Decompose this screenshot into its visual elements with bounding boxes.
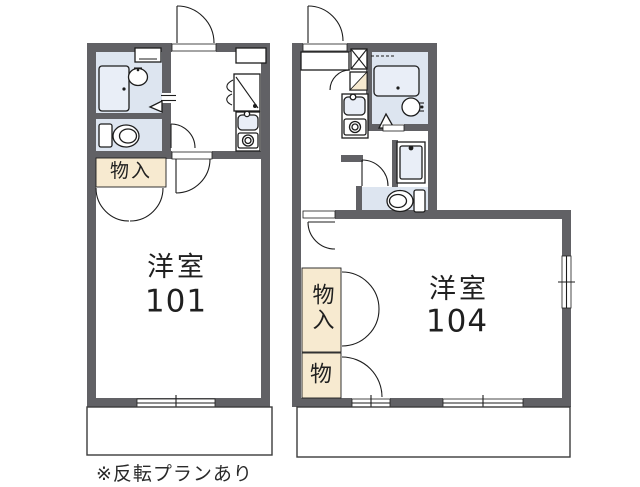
accordion-curtain-icon (227, 80, 233, 105)
bathtub-icon (374, 66, 419, 96)
wall (562, 308, 571, 407)
room-104-type-label: 洋室 (429, 276, 489, 304)
wall (404, 124, 437, 131)
washbasin-tap-dot (421, 106, 424, 109)
room-101-type-label: 洋室 (147, 254, 207, 282)
washing-machine-tap-dot (409, 146, 414, 151)
entry-door-swing-arc-101 (177, 6, 214, 43)
kitchen-faucet-dot (244, 111, 249, 116)
washbasin-icon (402, 98, 420, 116)
toilet-door-swing-arc-104 (362, 160, 388, 186)
wall (87, 43, 96, 407)
balcony-104 (297, 407, 570, 457)
stove-burner-inner (352, 124, 358, 130)
unit-101 (87, 6, 272, 455)
shoe-cabinet-104 (301, 52, 349, 70)
wall (390, 398, 443, 407)
balcony-101 (87, 407, 272, 455)
wall (562, 219, 571, 256)
toilet-bowl-inner (390, 195, 407, 208)
bathroom-threshold-104 (383, 125, 404, 131)
hall-door-swing-arc-104 (330, 70, 350, 90)
wall (212, 151, 261, 159)
wall (96, 151, 171, 158)
room-door-opening-101 (172, 152, 212, 159)
wall (261, 43, 270, 407)
washing-machine-tap-dot (253, 104, 257, 108)
entry-door-opening-104 (303, 44, 347, 51)
wall (523, 398, 571, 407)
wall (162, 52, 171, 93)
room-door-swing-arc-101 (176, 159, 210, 193)
footnote-reversed-plan: ※反転プランあり (96, 459, 253, 486)
closet-door-arc (96, 188, 129, 221)
bathroom-window-101 (135, 48, 161, 62)
floor-plan-canvas: 洋室 101 洋室 104 物入 物入 物 ※反転プランあり (0, 0, 640, 487)
kitchen-faucet-dot (350, 94, 356, 100)
wall (341, 155, 363, 162)
room-104-number-label: 104 (426, 306, 488, 339)
closet-door-arc (342, 272, 379, 309)
washing-machine-drum (400, 146, 422, 179)
wall (356, 186, 362, 215)
closet-door-arc (342, 309, 379, 346)
closet-door-arc (342, 357, 382, 397)
toilet-door-swing-arc-101 (171, 124, 195, 148)
wall (335, 210, 571, 219)
room-door-opening-104 (303, 211, 335, 218)
storage-104-sub-label: 物 (310, 363, 332, 386)
bathtub-drain-dot (122, 87, 125, 90)
stove-burner-inner (245, 138, 251, 144)
room-door-swing-arc-104 (308, 222, 335, 249)
washbasin-tap-dot (137, 69, 140, 72)
wall (292, 43, 301, 407)
kitchen-window-101 (236, 48, 266, 63)
toilet-tank-101 (99, 124, 112, 147)
storage-101-label: 物入 (110, 162, 152, 182)
bathtub-drain-dot (396, 86, 399, 89)
wall (96, 113, 162, 119)
room-101-number-label: 101 (145, 286, 207, 319)
entry-door-opening-101 (172, 44, 216, 51)
toilet-bowl-inner (120, 129, 137, 143)
floor-plan-drawing (0, 0, 640, 487)
wall (162, 103, 171, 151)
closet-door-arc (130, 188, 163, 221)
toilet-tank-104 (414, 190, 425, 212)
wall (292, 398, 352, 407)
unit-104 (292, 6, 575, 457)
storage-104-main-label: 物入 (309, 283, 332, 333)
kitchen-sink-icon (238, 115, 258, 130)
entry-door-swing-arc-104 (308, 6, 343, 41)
